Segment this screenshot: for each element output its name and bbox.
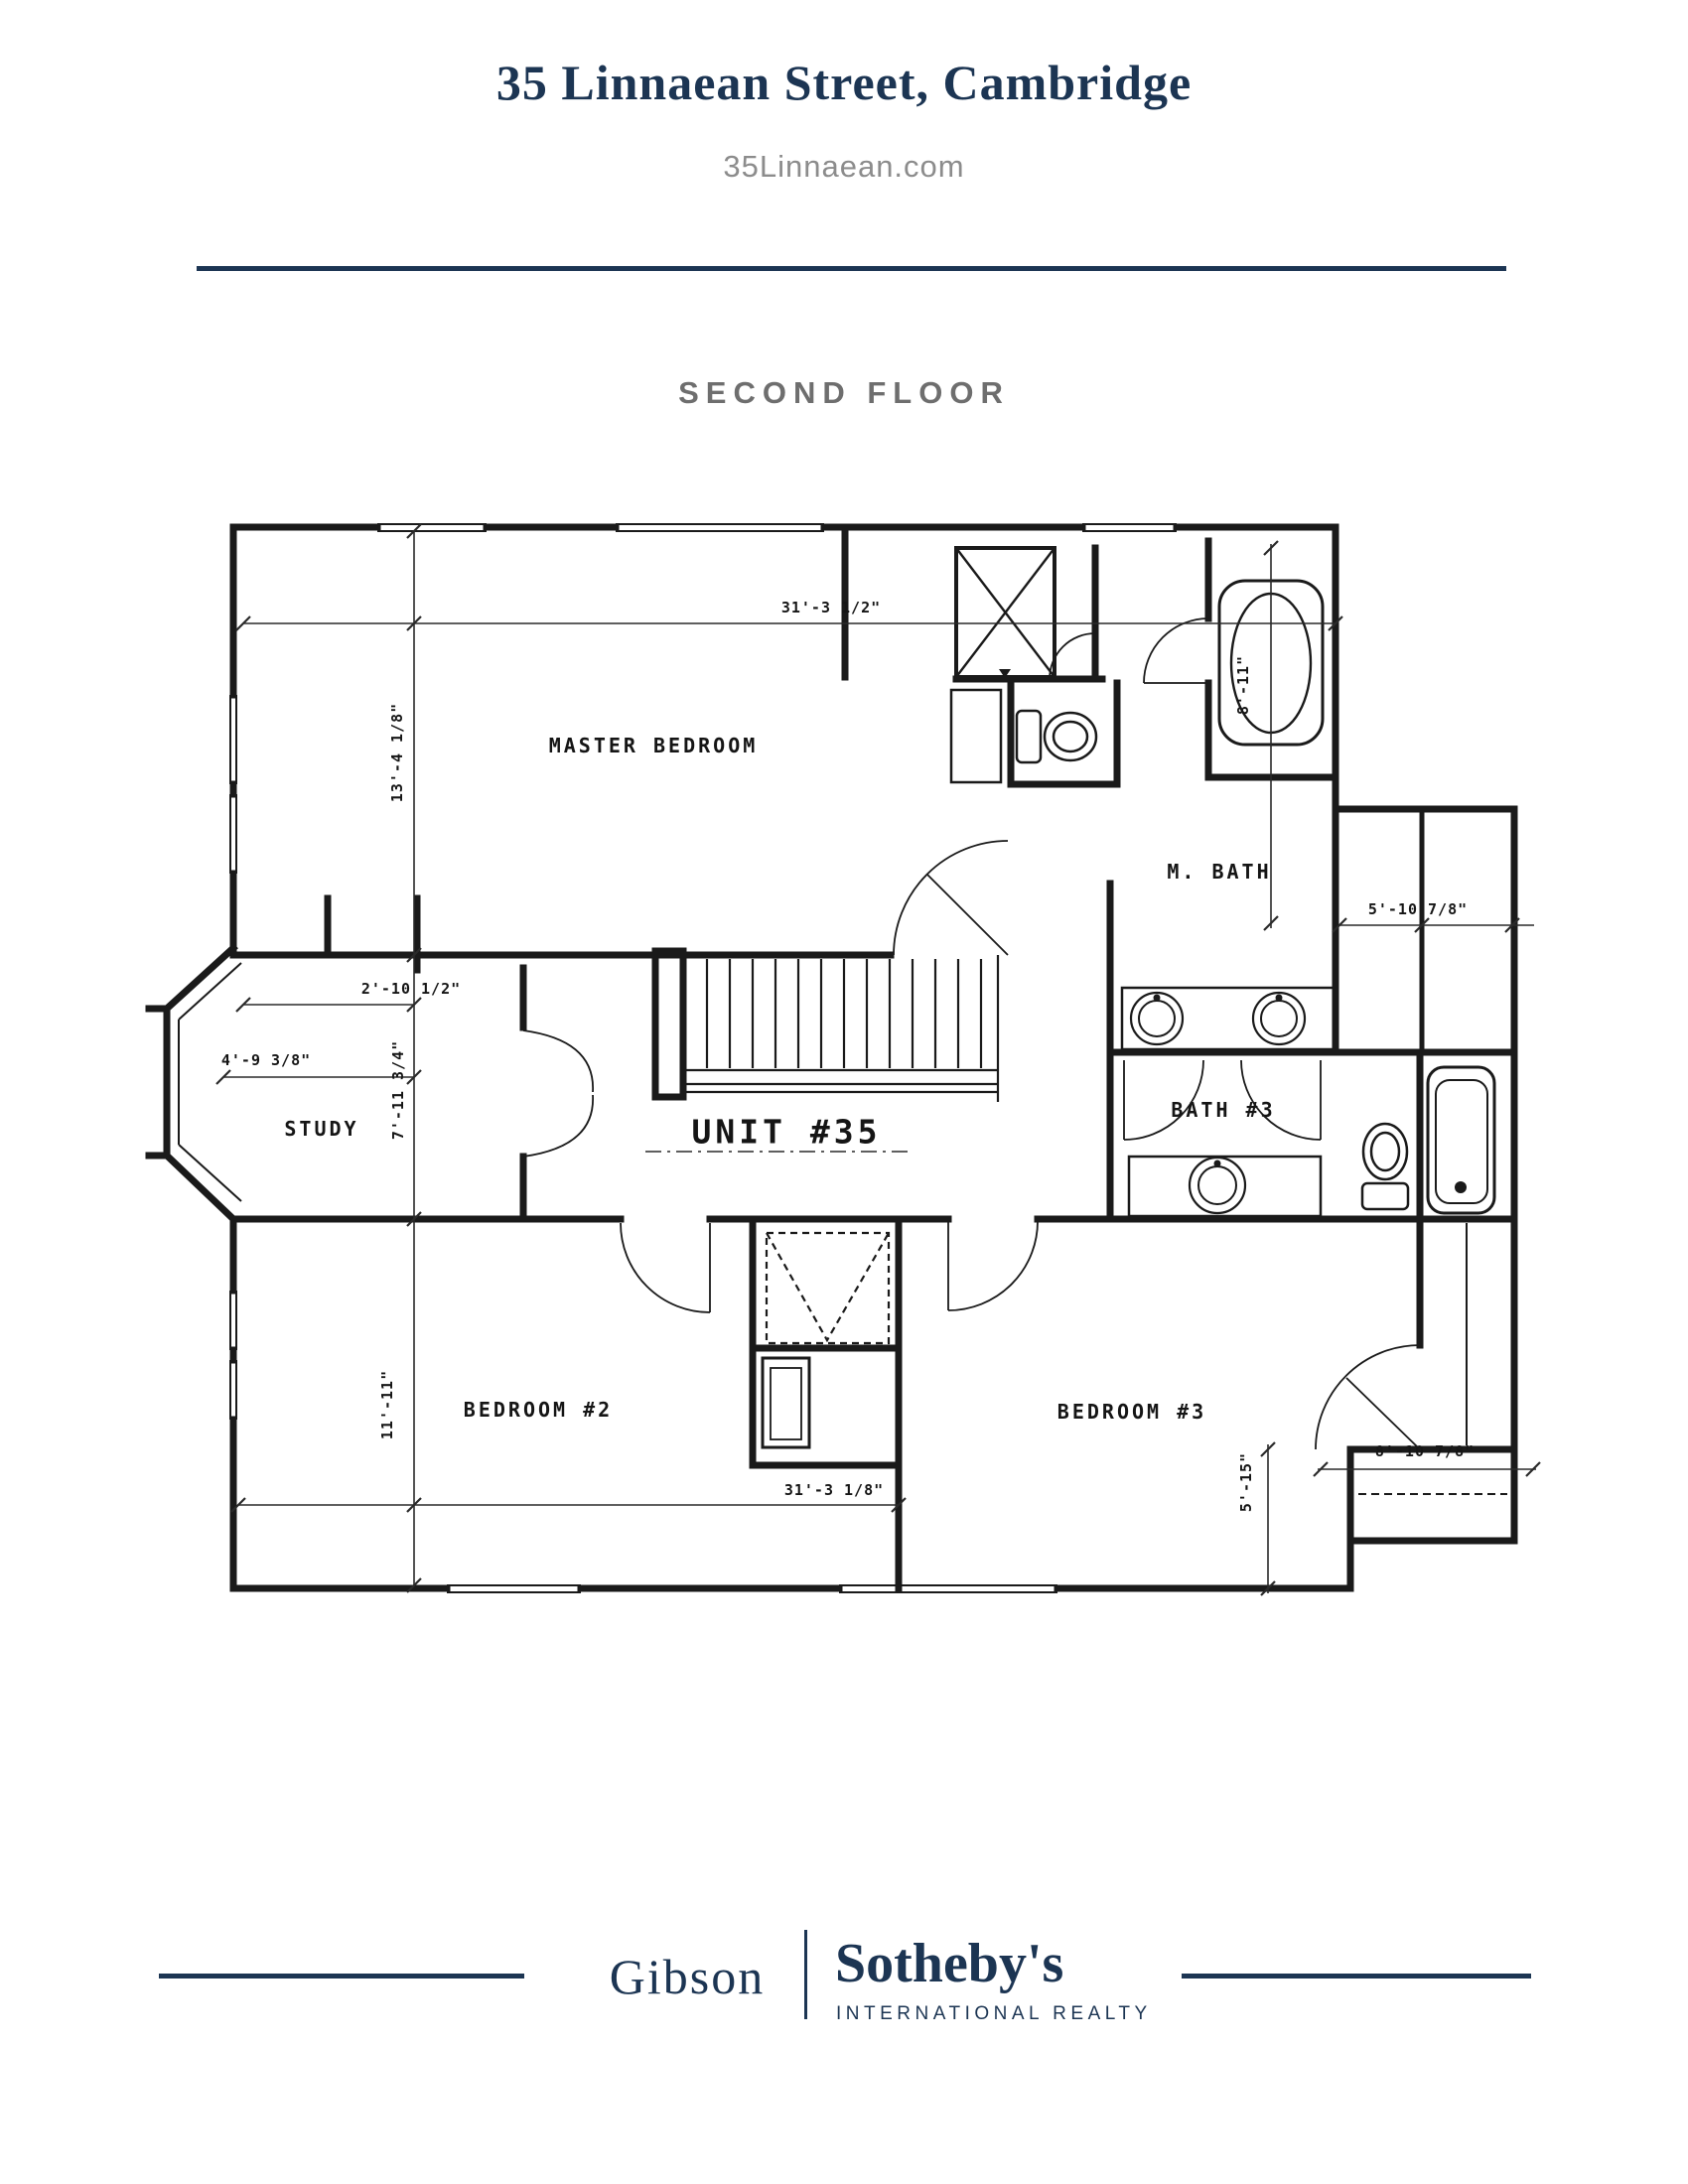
dim-label-master-height: 13'-4 1/8"	[388, 703, 406, 802]
linen-closet-icon	[951, 690, 1001, 782]
dim-label-bedroom2-height: 11'-11"	[378, 1370, 396, 1439]
room-label-study: STUDY	[284, 1117, 358, 1141]
dim-label-b3-right-height: 5'-15"	[1237, 1452, 1255, 1512]
brand-tagline: INTERNATIONAL REALTY	[836, 2003, 1152, 2025]
dim-label-tub-length: 8'-11"	[1234, 655, 1252, 715]
window-icons	[179, 524, 1177, 1592]
unit-number-label: UNIT #35	[692, 1113, 882, 1152]
double-sink-icon	[1122, 988, 1336, 1049]
room-label-bedroom-2: BEDROOM #2	[464, 1398, 613, 1422]
room-label-master-bedroom: MASTER BEDROOM	[549, 734, 759, 757]
logo-divider-bar	[804, 1930, 807, 2019]
stairs-icon	[683, 955, 998, 1102]
floor-plan-drawing	[0, 0, 1688, 2184]
dim-label-study-offset: 2'-10 1/2"	[361, 980, 461, 998]
footer-divider-left	[159, 1974, 524, 1979]
dim-label-study-width: 4'-9 3/8"	[221, 1051, 311, 1069]
flyer-page: 35 Linnaean Street, Cambridge 35Linnaean…	[0, 0, 1688, 2184]
dim-label-b3-closet-width: 8'-10 7/8"	[1375, 1442, 1475, 1460]
dimension-lines	[216, 524, 1540, 1595]
room-label-m-bath: M. BATH	[1167, 860, 1271, 884]
room-label-bedroom-3: BEDROOM #3	[1057, 1400, 1206, 1424]
sink-icon-bath3	[1129, 1157, 1321, 1216]
bathtub-icon-bath3	[1428, 1067, 1494, 1213]
dim-label-bottom-width: 31'-3 1/8"	[784, 1481, 884, 1499]
dim-label-closet-width: 5'-10 7/8"	[1368, 900, 1468, 918]
toilet-icon-bath3	[1362, 1124, 1408, 1209]
toilet-icon-master	[1017, 711, 1096, 762]
brand-name-gibson: Gibson	[588, 1948, 786, 2005]
room-label-bath-3: BATH #3	[1171, 1098, 1275, 1122]
footer-divider-right	[1182, 1974, 1531, 1979]
brand-name-sothebys: Sotheby's	[835, 1932, 1063, 1995]
dim-label-top-width: 31'-3 1/2"	[781, 599, 881, 616]
dim-label-study-height: 7'-11 3/4"	[389, 1040, 407, 1140]
shower-icon	[956, 548, 1055, 678]
